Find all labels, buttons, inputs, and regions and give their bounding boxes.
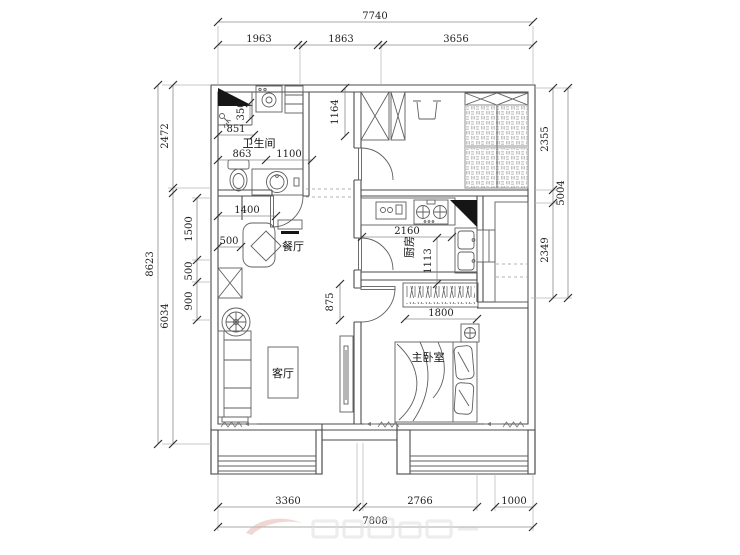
dining-table bbox=[243, 223, 275, 267]
dim-top-seg1: 1963 bbox=[246, 34, 271, 45]
watermark bbox=[246, 519, 478, 537]
window bbox=[218, 456, 316, 471]
small-appliance bbox=[376, 202, 406, 219]
second-bedroom bbox=[361, 92, 528, 188]
dim-top-seg3: 3656 bbox=[443, 34, 468, 45]
dim-right-total: 5004 bbox=[556, 180, 567, 205]
wall-console bbox=[278, 220, 302, 234]
dim-right-seg2: 2349 bbox=[540, 237, 551, 262]
dim-bottom-seg1: 3360 bbox=[275, 496, 300, 507]
nightstand-plant bbox=[461, 324, 479, 342]
dim-left-seg1: 2472 bbox=[160, 123, 171, 148]
storage-cabinet bbox=[218, 268, 242, 298]
dim-bedroom-door: 875 bbox=[325, 292, 336, 311]
dim-bath-851: 851 bbox=[226, 124, 245, 135]
dim-bath-door: 1100 bbox=[276, 149, 301, 160]
dim-left-seg2: 6034 bbox=[160, 303, 171, 328]
dim-dining-niche: 500 bbox=[219, 236, 238, 247]
room-label-living: 客厅 bbox=[272, 366, 294, 380]
clothes-rail bbox=[403, 283, 478, 307]
floor-plan-page: 7740 1963 1863 3656 8623 2472 6034 1500 … bbox=[0, 0, 740, 555]
kitchen-sink bbox=[455, 228, 477, 273]
dim-bottom-seg3: 1000 bbox=[501, 496, 526, 507]
dim-kitchen-depth: 1113 bbox=[423, 248, 434, 273]
tv-cabinet bbox=[340, 336, 353, 412]
dim-right-seg1: 2355 bbox=[540, 126, 551, 151]
dimension-labels: 7740 1963 1863 3656 8623 2472 6034 1500 … bbox=[145, 11, 567, 527]
dim-hall-chain1: 1500 bbox=[184, 216, 195, 241]
floor-plan-svg: 7740 1963 1863 3656 8623 2472 6034 1500 … bbox=[0, 0, 740, 555]
wardrobe-x bbox=[361, 92, 405, 140]
dim-bottom-seg2: 2766 bbox=[407, 496, 432, 507]
window bbox=[410, 456, 528, 471]
decor-fan bbox=[222, 308, 250, 336]
balcony-windows bbox=[211, 430, 535, 474]
dim-kitchen-width: 2160 bbox=[394, 226, 419, 237]
dim-hall-width: 1400 bbox=[234, 205, 259, 216]
dim-left-total: 8623 bbox=[145, 251, 156, 276]
fridge-cabinet bbox=[477, 202, 528, 302]
dim-hall-chain3: 900 bbox=[184, 291, 195, 310]
chair bbox=[251, 231, 281, 261]
dim-top-total: 7740 bbox=[362, 11, 387, 22]
dim-top-seg2: 1863 bbox=[328, 34, 353, 45]
dim-closet-depth: 1164 bbox=[330, 99, 341, 124]
vanity-sink bbox=[252, 169, 303, 195]
dim-wardrobe-width: 1800 bbox=[428, 308, 453, 319]
room-label-master-bedroom: 主卧室 bbox=[412, 350, 445, 364]
dim-bath-niche: 350 bbox=[236, 101, 247, 120]
washing-machine bbox=[256, 86, 282, 112]
counter bbox=[361, 198, 455, 225]
tatami-bed bbox=[465, 93, 528, 188]
room-label-kitchen: 厨房 bbox=[403, 236, 416, 258]
sofa bbox=[218, 331, 251, 422]
room-label-dining: 餐厅 bbox=[282, 239, 304, 253]
dim-hall-chain2: 500 bbox=[184, 261, 195, 280]
shelf bbox=[477, 230, 495, 262]
dim-bath-863: 863 bbox=[232, 149, 251, 160]
entry-bench bbox=[413, 101, 441, 119]
gas-stove bbox=[414, 200, 448, 224]
toilet bbox=[228, 160, 249, 191]
room-label-bathroom: 卫生间 bbox=[243, 136, 276, 150]
shelf-unit bbox=[285, 86, 303, 113]
flue-duct bbox=[450, 200, 477, 227]
